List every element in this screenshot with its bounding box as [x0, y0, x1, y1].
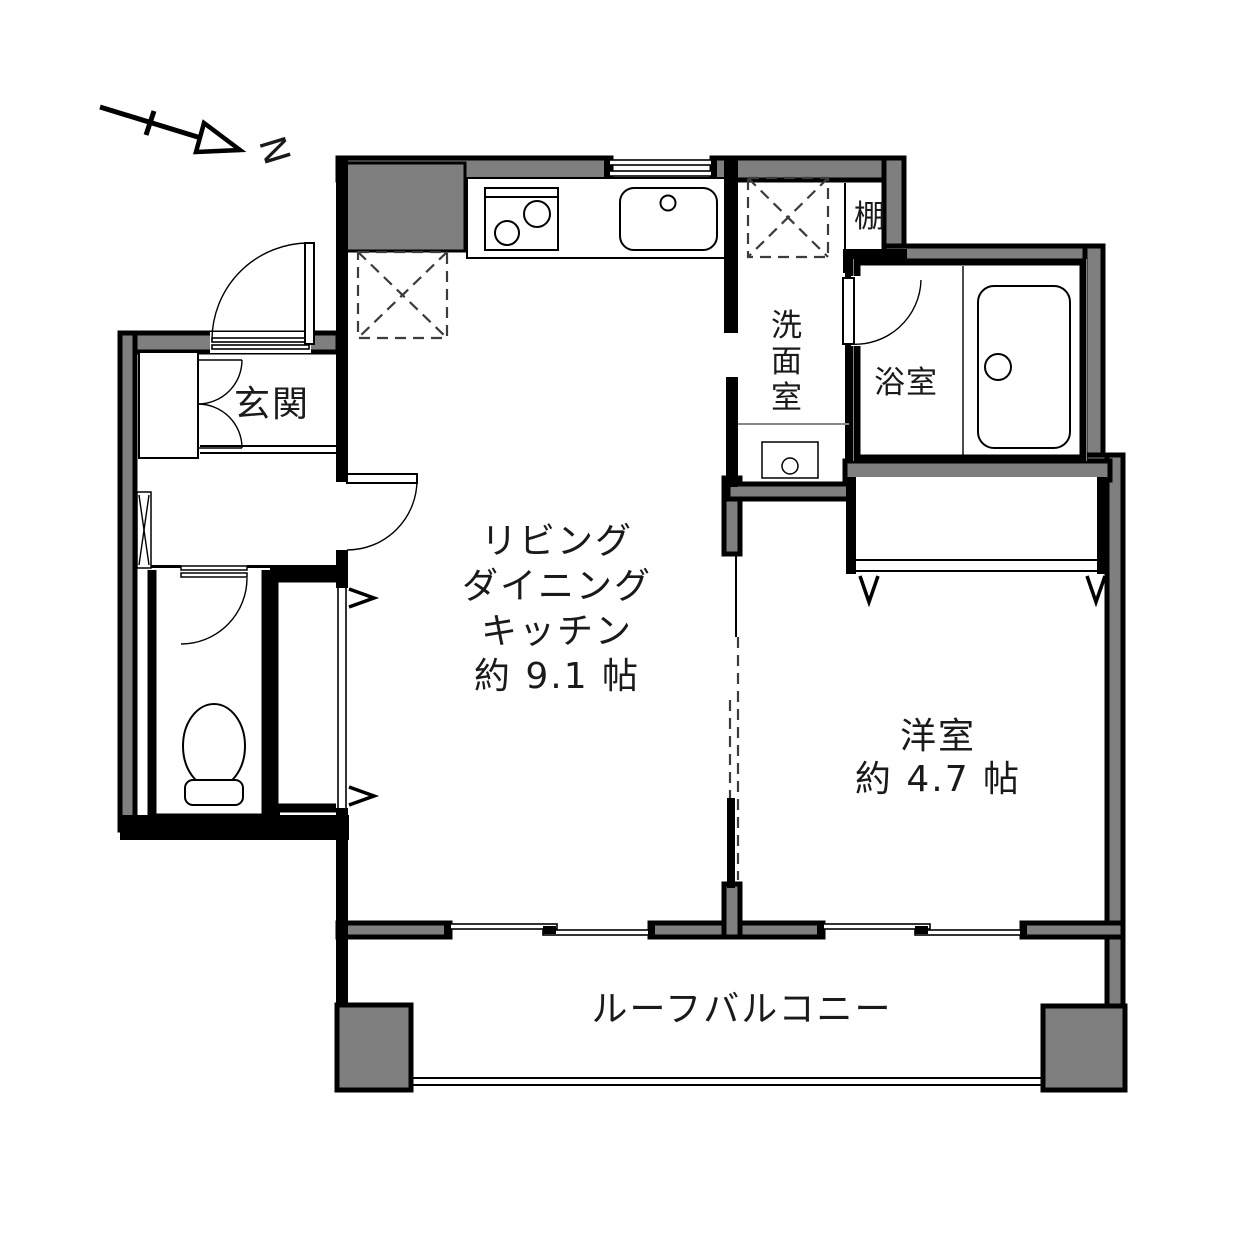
bedroom-closet-floor — [851, 477, 1102, 563]
kitchen-sink — [620, 188, 717, 250]
ldk-slider-lock — [543, 926, 556, 934]
stove-burner-2 — [524, 201, 550, 227]
label-genkan: 玄関 — [234, 384, 310, 425]
toilet-bowl — [183, 704, 245, 788]
label-bedroom-line-2: 約 4.7 帖 — [855, 759, 1021, 800]
wall-bath-right — [1085, 246, 1103, 464]
entry-door-leaf — [305, 243, 314, 344]
shoe-closet — [139, 352, 198, 458]
label-washroom-char-2: 面 — [771, 344, 803, 380]
hall-closet-floor — [270, 574, 336, 812]
bathtub — [963, 266, 1070, 455]
wall-west-upper — [336, 158, 348, 482]
kitchen-window-line-2 — [609, 171, 713, 176]
label-ldk-line-2: ダイニング — [462, 566, 652, 607]
floor-plan-page: N — [0, 0, 1252, 1252]
wall-outer-left — [120, 333, 135, 830]
stove — [485, 188, 558, 250]
pillar-balcony-right — [1043, 1006, 1125, 1090]
wall-washroom-bottom — [728, 484, 860, 499]
wall-partition-solid — [727, 798, 735, 888]
kitchen-window-cap-left — [604, 158, 610, 180]
vanity-faucet — [782, 458, 798, 474]
pillar-balcony-left — [337, 1005, 411, 1090]
label-ldk-line-1: リビング — [481, 521, 633, 562]
ldk-slider-cap-left — [444, 923, 451, 937]
kitchen-window-cap-right — [711, 158, 717, 180]
bedroom-slider-cap-right — [1020, 923, 1027, 937]
toilet-doorway-line-1 — [181, 566, 247, 570]
bedroom-slider-panel-1 — [823, 924, 930, 929]
wall-washroom-west-lower — [726, 377, 738, 487]
toilet-doorway-line-2 — [181, 573, 247, 577]
label-washroom-char-3: 室 — [771, 380, 803, 416]
hall-ldk-door-leaf — [347, 474, 417, 483]
wall-partition-bottom-stub — [724, 884, 740, 937]
toilet — [183, 704, 245, 805]
wall-top-corner — [884, 158, 904, 254]
label-ldk-line-3: キッチン — [481, 611, 633, 652]
ldk-slider-cap-right — [648, 923, 655, 937]
label-bathroom: 浴室 — [874, 365, 938, 401]
closet-track-cap-right — [1097, 556, 1107, 574]
pipe-space — [137, 492, 151, 568]
bedroom-slider-panel-2 — [915, 930, 1022, 935]
sink-faucet — [661, 196, 676, 211]
entry-doorway-line-2 — [212, 345, 309, 349]
entry-doorway-line-1 — [212, 338, 309, 342]
toilet-tank — [185, 780, 243, 805]
label-bedroom-line-1: 洋室 — [900, 716, 976, 757]
floor-plan: N — [0, 0, 1252, 1252]
wall-bottom-ldk — [338, 923, 450, 937]
closet-track-cap-left — [846, 556, 856, 574]
wall-kitchen-washroom — [724, 158, 738, 333]
bathroom-door-leaf — [843, 278, 854, 344]
bedroom-closet-right — [1097, 477, 1107, 565]
label-washroom-char-1: 洗 — [771, 308, 803, 344]
label-balcony: ルーフバルコニー — [591, 989, 892, 1030]
stove-burner-1 — [495, 221, 519, 245]
kitchen-window-line-1 — [609, 160, 713, 165]
bedroom-slider-cap-left — [817, 923, 824, 937]
wall-top-right — [712, 158, 904, 180]
bedroom-closet-left — [846, 477, 856, 565]
bedroom-slider-lock — [915, 926, 928, 934]
wall-west-stub — [336, 550, 348, 588]
wall-bottom-right — [1022, 923, 1123, 937]
pillar-kitchen-corner — [341, 163, 465, 251]
label-ldk-line-4: 約 9.1 帖 — [474, 656, 640, 697]
bathtub-drain — [985, 354, 1011, 380]
ldk-slider-panel-2 — [543, 930, 650, 935]
ldk-slider-panel-1 — [450, 924, 557, 929]
label-shelf: 棚 — [854, 199, 886, 235]
